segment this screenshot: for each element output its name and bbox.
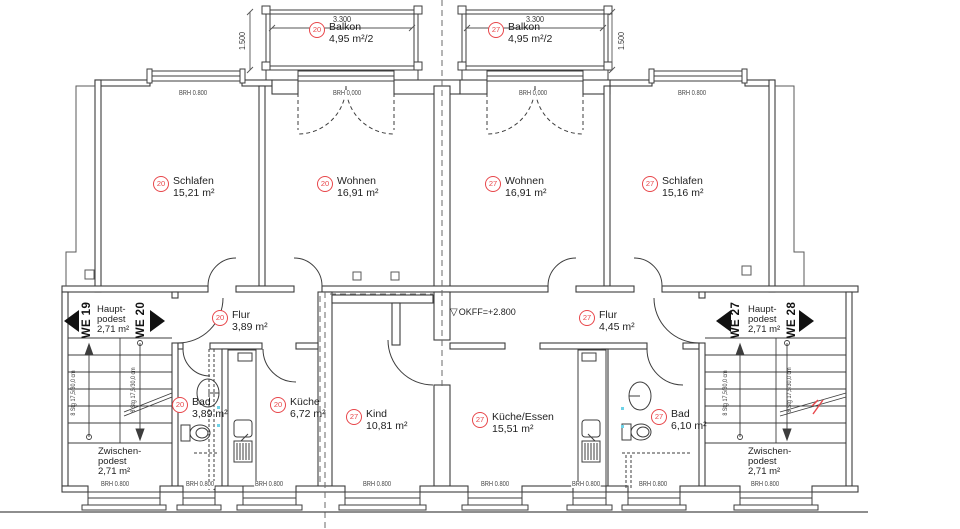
level-marker: ▽ OKFF=+2.800 xyxy=(450,307,516,317)
plan-linework xyxy=(0,0,960,529)
unit-badge: 20 xyxy=(270,397,286,413)
room-area: 4,45 m² xyxy=(599,321,635,333)
unit-badge: 27 xyxy=(579,310,595,326)
sill-note: BRH 0.800 xyxy=(677,90,707,97)
fixtures xyxy=(181,350,651,486)
room-name: Schlafen xyxy=(662,175,703,187)
room-area: 10,81 m² xyxy=(366,420,407,432)
unit-label-we19: WE 19 xyxy=(81,302,93,339)
unit-badge: 27 xyxy=(346,409,362,425)
room-name: Bad xyxy=(671,408,690,420)
dimension-balcony-left-depth: 1.500 xyxy=(237,32,247,50)
unit-badge: 27 xyxy=(651,409,667,425)
room-area: 15,21 m² xyxy=(173,187,214,199)
room-label-kueche-essen-27: 27 Küche/Essen 15,51 m² xyxy=(472,412,554,435)
sill-note: BRH 0.800 xyxy=(638,481,668,488)
unit-badge: 20 xyxy=(309,22,325,38)
room-area: 3,89 m² xyxy=(192,408,228,420)
room-area: 6,72 m² xyxy=(290,408,326,420)
room-label-kueche-20: 20 Küche 6,72 m² xyxy=(270,397,326,420)
mid-landing-label-right: Zwischen- podest 2,71 m² xyxy=(748,447,791,477)
flight-note: 8 Stg 17,5/30,0 cm xyxy=(787,367,793,412)
room-name: Wohnen xyxy=(337,175,376,187)
threshold-note: BRH 0,000 xyxy=(332,90,362,97)
unit-badge: 27 xyxy=(472,412,488,428)
room-area: 6,10 m² xyxy=(671,420,707,432)
room-name: Schlafen xyxy=(173,175,214,187)
unit-badge: 20 xyxy=(212,310,228,326)
room-name: Balkon xyxy=(508,21,540,33)
unit-label-we28: WE 28 xyxy=(786,302,798,339)
sill-note: BRH 0.800 xyxy=(254,481,284,488)
sill-note: BRH 0.800 xyxy=(750,481,780,488)
sill-note: BRH 0.800 xyxy=(185,481,215,488)
room-label-bad-20: 20 Bad 3,89 m² xyxy=(172,397,228,420)
unit-badge: 20 xyxy=(317,176,333,192)
room-label-schlafen-20: 20 Schlafen 15,21 m² xyxy=(153,176,214,199)
unit-badge: 27 xyxy=(488,22,504,38)
room-label-flur-20: 20 Flur 3,89 m² xyxy=(212,310,268,333)
room-name: Kind xyxy=(366,408,387,420)
dimension-balcony-right-depth: 1.500 xyxy=(616,32,626,50)
room-area: 16,91 m² xyxy=(505,187,546,199)
room-name: Flur xyxy=(599,309,617,321)
room-label-flur-27: 27 Flur 4,45 m² xyxy=(579,310,635,333)
room-area: 3,89 m² xyxy=(232,321,268,333)
threshold-note: BRH 0,000 xyxy=(518,90,548,97)
sill-note: BRH 0.800 xyxy=(178,90,208,97)
unit-badge: 27 xyxy=(485,176,501,192)
sill-note: BRH 0.800 xyxy=(480,481,510,488)
room-label-schlafen-27: 27 Schlafen 15,16 m² xyxy=(642,176,703,199)
sill-note: BRH 0.800 xyxy=(362,481,392,488)
room-area: 4,95 m²/2 xyxy=(329,33,373,45)
room-area: 15,16 m² xyxy=(662,187,703,199)
unit-label-we20: WE 20 xyxy=(135,302,147,339)
unit-badge: 20 xyxy=(153,176,169,192)
room-area: 16,91 m² xyxy=(337,187,378,199)
room-name: Küche/Essen xyxy=(492,411,554,423)
room-area: 4,95 m²/2 xyxy=(508,33,552,45)
room-name: Bad xyxy=(192,396,211,408)
flight-note: 8 Stg 17,5/30,0 cm xyxy=(723,370,729,415)
room-label-wohnen-27: 27 Wohnen 16,91 m² xyxy=(485,176,546,199)
sill-note: BRH 0.800 xyxy=(100,481,130,488)
main-landing-label-left: Haupt- podest 2,71 m² xyxy=(97,305,129,335)
room-label-bad-27: 27 Bad 6,10 m² xyxy=(651,409,707,432)
room-name: Wohnen xyxy=(505,175,544,187)
room-name: Flur xyxy=(232,309,250,321)
main-landing-label-right: Haupt- podest 2,71 m² xyxy=(748,305,780,335)
floor-plan: 3.300 3.300 1.500 1.500 20 Balkon 4,95 m… xyxy=(0,0,960,529)
room-area: 15,51 m² xyxy=(492,423,533,435)
room-label-kind-27: 27 Kind 10,81 m² xyxy=(346,409,407,432)
unit-badge: 27 xyxy=(642,176,658,192)
flight-note: 8 Stg 17,5/30,0 cm xyxy=(71,370,77,415)
level-triangle-icon: ▽ xyxy=(450,308,458,317)
room-name: Balkon xyxy=(329,21,361,33)
room-label-balkon-20: 20 Balkon 4,95 m²/2 xyxy=(309,22,373,45)
unit-badge: 20 xyxy=(172,397,188,413)
sill-note: BRH 0.800 xyxy=(571,481,601,488)
room-label-wohnen-20: 20 Wohnen 16,91 m² xyxy=(317,176,378,199)
flight-note: 8 Stg 17,5/30,0 cm xyxy=(131,367,137,412)
unit-label-we27: WE 27 xyxy=(730,302,742,339)
room-name: Küche xyxy=(290,396,320,408)
mid-landing-label-left: Zwischen- podest 2,71 m² xyxy=(98,447,141,477)
room-label-balkon-27: 27 Balkon 4,95 m²/2 xyxy=(488,22,552,45)
